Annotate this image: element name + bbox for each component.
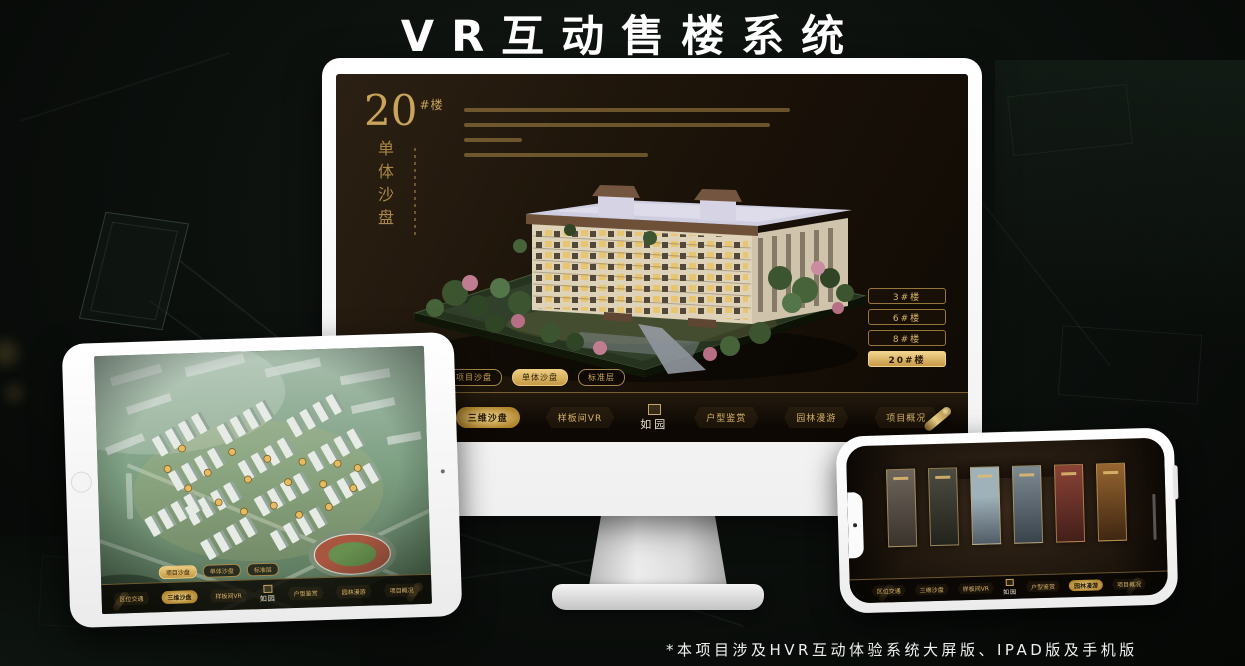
phone-side-button: [1173, 465, 1179, 499]
project-logo: 如园: [1003, 579, 1017, 596]
nav-item[interactable]: 区位交通: [113, 592, 149, 606]
sub-tab[interactable]: 项目沙盘: [159, 565, 197, 579]
building-button[interactable]: 3#楼: [868, 288, 946, 304]
logo-text: 如园: [260, 594, 276, 604]
nav-group-left: 区位交通三维沙盘样板间VR: [113, 589, 248, 606]
scene-gallery: [886, 463, 1127, 548]
monitor-sub-tabs: 项目沙盘单体沙盘标准层: [446, 369, 625, 386]
nav-item[interactable]: 项目概况: [1112, 578, 1146, 590]
gallery-card[interactable]: [1012, 465, 1043, 544]
nav-item[interactable]: 样板间VR: [958, 582, 995, 594]
description-line: [464, 108, 790, 112]
logo-text: 如园: [640, 416, 668, 432]
phone-camera-icon: [853, 523, 857, 527]
nav-item[interactable]: 项目概况: [383, 583, 419, 597]
building-button[interactable]: 6#楼: [868, 309, 946, 325]
phone-screen: 区位交通三维沙盘样板间VR 如园 户型鉴赏园林漫游项目概况: [846, 438, 1168, 604]
nav-item[interactable]: 样板间VR: [209, 589, 248, 603]
gallery-card[interactable]: [1096, 463, 1127, 542]
building-render[interactable]: [400, 118, 880, 388]
nav-item[interactable]: 三维沙盘: [915, 584, 949, 596]
monitor-stand-neck: [588, 510, 728, 592]
nav-item[interactable]: 园林漫游: [784, 407, 848, 428]
tablet-camera-icon: [441, 469, 445, 473]
sub-tab[interactable]: 标准层: [247, 563, 279, 577]
background-glow: [6, 385, 22, 401]
nav-group-left: 区位交通三维沙盘样板间VR: [872, 582, 995, 596]
monitor-stand-base: [552, 584, 764, 610]
nav-item[interactable]: 区位交通: [872, 585, 906, 597]
phone-notch: [847, 492, 864, 558]
sub-tab[interactable]: 单体沙盘: [512, 369, 568, 386]
page-title: VR互动售楼系统: [0, 2, 1245, 64]
background-photo-right: [995, 60, 1245, 440]
nav-item[interactable]: 园林漫游: [1069, 579, 1103, 591]
logo-seal-icon: [263, 585, 272, 593]
logo-text: 如园: [1003, 587, 1017, 596]
nav-group-right: 户型鉴赏园林漫游项目概况: [288, 583, 420, 600]
tablet-screen: 项目沙盘单体沙盘标准层 区位交通三维沙盘样板间VR 如园 户型鉴赏园林漫游项目概…: [94, 346, 432, 614]
nav-group-right: 户型鉴赏园林漫游项目概况: [1026, 578, 1146, 592]
building-selector: 3#楼6#楼8#楼20#楼: [868, 288, 946, 367]
nav-group-right: 户型鉴赏园林漫游项目概况: [694, 407, 938, 428]
gallery-card[interactable]: [886, 469, 917, 548]
nav-item[interactable]: 三维沙盘: [456, 407, 520, 428]
gallery-card[interactable]: [928, 467, 959, 546]
logo-seal-icon: [1006, 579, 1014, 586]
gallery-card[interactable]: [1054, 464, 1085, 543]
nav-item[interactable]: 样板间VR: [546, 407, 614, 428]
headline-vertical-label: 单体沙盘: [372, 140, 396, 232]
building-button[interactable]: 8#楼: [868, 330, 946, 346]
background-plaque: [79, 212, 189, 330]
gallery-card[interactable]: [970, 466, 1001, 545]
sub-tab[interactable]: 单体沙盘: [203, 564, 241, 578]
nav-item[interactable]: 户型鉴赏: [694, 407, 758, 428]
nav-item[interactable]: 户型鉴赏: [1026, 581, 1060, 593]
footnote-text: *本项目涉及HVR互动体验系统大屏版、IPAD版及手机版: [666, 639, 1138, 660]
nav-item[interactable]: 园林漫游: [335, 585, 371, 599]
building-number-suffix: #楼: [419, 96, 443, 113]
nav-item[interactable]: 三维沙盘: [161, 590, 197, 604]
project-logo: 如园: [640, 404, 668, 432]
tablet-home-button[interactable]: [71, 471, 93, 493]
background-glow: [0, 340, 18, 366]
nav-item[interactable]: 户型鉴赏: [288, 586, 324, 600]
tablet-device: 项目沙盘单体沙盘标准层 区位交通三维沙盘样板间VR 如园 户型鉴赏园林漫游项目概…: [62, 332, 463, 628]
project-logo: 如园: [259, 585, 276, 604]
sub-tab[interactable]: 标准层: [578, 369, 625, 386]
building-button[interactable]: 20#楼: [868, 351, 946, 367]
phone-device: 区位交通三维沙盘样板间VR 如园 户型鉴赏园林漫游项目概况: [836, 427, 1179, 613]
logo-seal-icon: [648, 404, 661, 415]
